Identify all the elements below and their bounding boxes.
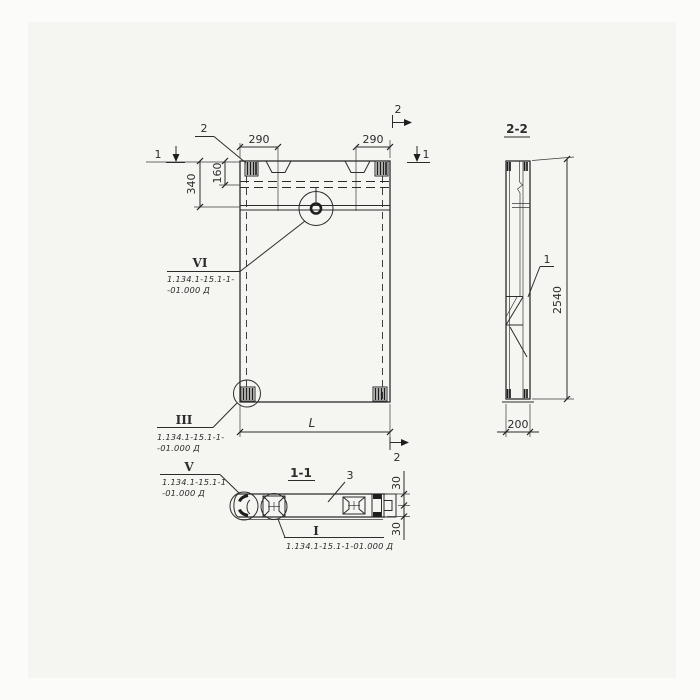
svg-text:1.134.1-15.1-1-01.000 Д: 1.134.1-15.1-1-01.000 Д <box>286 541 393 551</box>
svg-text:1-1: 1-1 <box>290 466 312 480</box>
svg-text:I: I <box>313 524 319 538</box>
svg-text:2: 2 <box>201 122 208 135</box>
svg-text:-01.000 Д: -01.000 Д <box>162 488 205 498</box>
svg-text:1: 1 <box>544 253 551 266</box>
drawing-sheet: 290 290 160 340 <box>0 0 700 700</box>
svg-text:-01.000 Д: -01.000 Д <box>157 443 200 453</box>
svg-text:-01.000 Д: -01.000 Д <box>167 285 210 295</box>
svg-text:30: 30 <box>390 476 403 490</box>
paper-background <box>28 22 676 678</box>
svg-text:1: 1 <box>155 148 162 161</box>
svg-text:160: 160 <box>211 163 224 184</box>
svg-text:2540: 2540 <box>551 286 564 314</box>
svg-text:L: L <box>309 416 316 430</box>
svg-text:2-2: 2-2 <box>506 122 528 136</box>
svg-text:340: 340 <box>185 174 198 195</box>
svg-text:VI: VI <box>192 256 208 270</box>
svg-text:2: 2 <box>394 451 401 464</box>
svg-text:200: 200 <box>508 418 529 431</box>
svg-text:2: 2 <box>395 103 402 116</box>
svg-text:30: 30 <box>390 522 403 536</box>
svg-text:V: V <box>183 460 194 474</box>
svg-text:III: III <box>176 413 193 427</box>
svg-text:1: 1 <box>423 148 430 161</box>
svg-text:290: 290 <box>363 133 384 146</box>
svg-text:3: 3 <box>347 469 354 482</box>
svg-text:1.134.1-15.1-1: 1.134.1-15.1-1 <box>162 477 226 487</box>
svg-text:290: 290 <box>249 133 270 146</box>
svg-text:1.134.1-15.1-1-: 1.134.1-15.1-1- <box>157 432 224 442</box>
blueprint-svg: 290 290 160 340 <box>0 0 700 700</box>
svg-text:1.134.1-15.1-1-: 1.134.1-15.1-1- <box>167 274 234 284</box>
